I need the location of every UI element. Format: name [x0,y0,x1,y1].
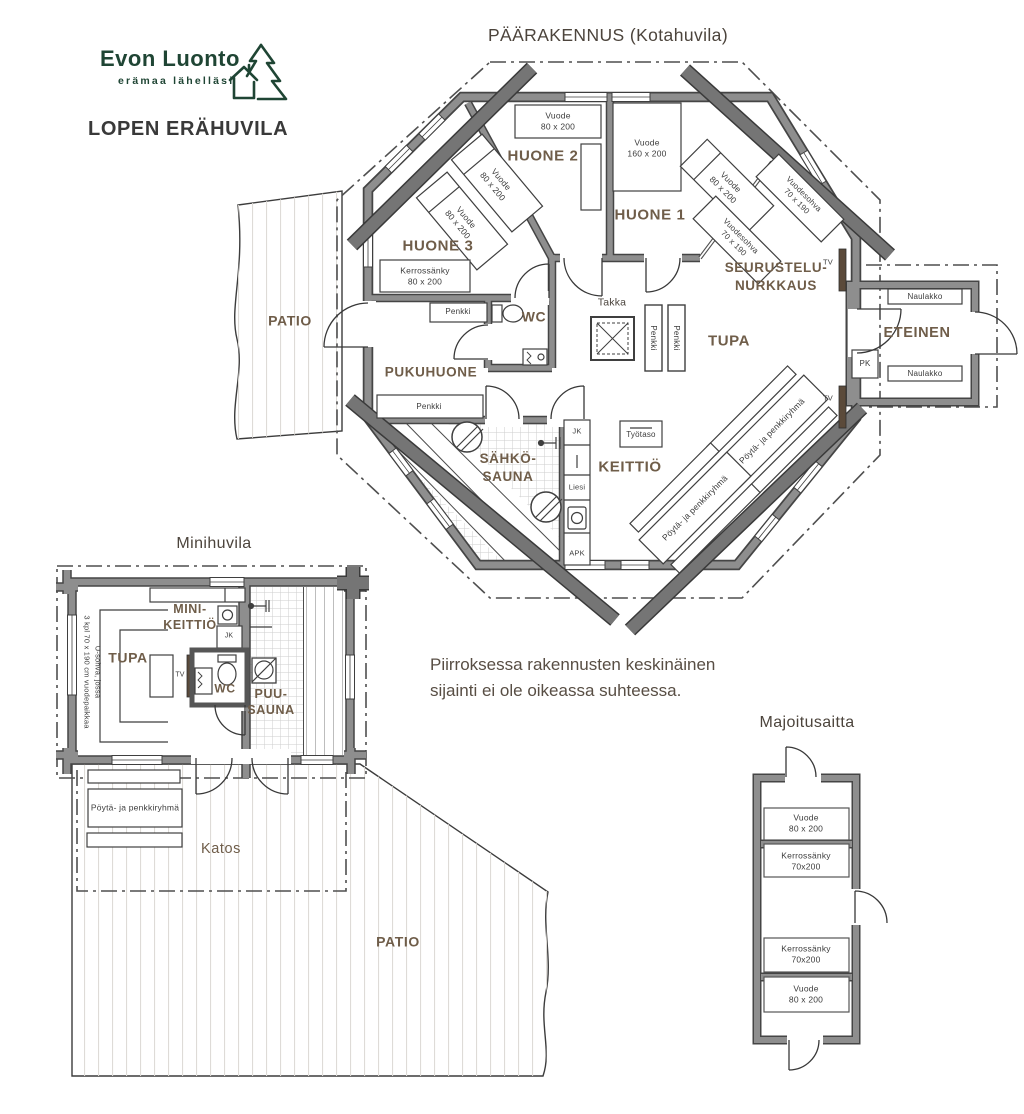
brand-name: Evon Luonto [100,46,240,72]
room-label-sahkosauna: SÄHKÖ- SAUNA [480,450,537,486]
coat-rack-label: Naulakko [908,369,943,379]
room-label-tupa: TUPA [708,333,750,352]
bed-label: Vuode 80 x 200 [789,983,823,1004]
bench-label: Penkki [671,325,681,350]
bed-label: Vuode 160 x 200 [627,137,666,158]
room-label-katos: Katos [201,840,241,858]
stove-label: Liesi [569,482,585,491]
dishwasher-label: APK [569,548,585,557]
room-label-minikeittio: MINI- KEITTIÖ [163,601,217,634]
brand-tagline: erämaa lähelläsi [118,75,234,87]
fridge-label: JK [572,426,581,435]
bunk-bed-label: Kerrossänky 80 x 200 [400,265,449,286]
bed-label: Vuode 80 x 200 [541,110,575,131]
mini-building-title: Minihuvila [176,534,251,554]
bed-label: Vuode 80 x 200 [789,812,823,833]
pk-label: PK [859,359,870,369]
room-label-patio-left: PATIO [268,312,312,330]
tv-label: TV [823,257,833,266]
room-label-wc-mini: WC [214,682,235,697]
room-label-seurustelunurkkaus: SEURUSTELU- NURKKAUS [725,259,828,295]
main-building-title: PÄÄRAKENNUS (Kotahuvila) [488,25,728,47]
bunk-bed-label: Kerrossänky 70x200 [781,943,830,964]
plan-title: LOPEN ERÄHUVILA [88,118,288,141]
bench-label: Penkki [416,402,441,412]
tv-label: TV [175,672,184,681]
bench-label: Penkki [445,307,470,317]
room-label-huone3: HUONE 3 [403,238,474,257]
bench-label: Penkki [648,325,658,350]
floorplan-page: Evon Luonto erämaa lähelläsi LOPEN ERÄHU… [0,0,1024,1114]
label-takka: Takka [598,296,626,309]
room-label-pukuhuone: PUKUHUONE [385,365,477,382]
floorplan-drawing [0,0,1024,1114]
room-label-keittio: KEITTIÖ [598,459,661,478]
fridge-label: JK [225,633,234,642]
room-label-huone1: HUONE 1 [615,207,686,226]
aitta-building-title: Majoitusaitta [759,713,854,733]
room-label-huone2: HUONE 2 [508,148,579,167]
room-label-eteinen: ETEINEN [883,324,950,342]
room-label-puusauna: PUU- SAUNA [247,686,294,719]
bunk-bed-label: Kerrossänky 70x200 [781,850,830,871]
room-label-tupa-mini: TUPA [108,649,147,667]
coat-rack-label: Naulakko [908,292,943,302]
u-sofa-label: U-sohva, jossa 3 kpl 70 x 190 cm vuodepa… [81,615,104,728]
table-bench-group-label: Pöytä- ja penkkiryhmä [91,803,179,814]
room-label-wc-main: WC [522,308,547,326]
room-label-patio-bottom: PATIO [376,933,420,951]
scale-note: Piirroksessa rakennusten keskinäinen sij… [430,652,715,703]
tv-label: TV [823,393,833,402]
worktop-label: Työtaso [626,430,655,440]
